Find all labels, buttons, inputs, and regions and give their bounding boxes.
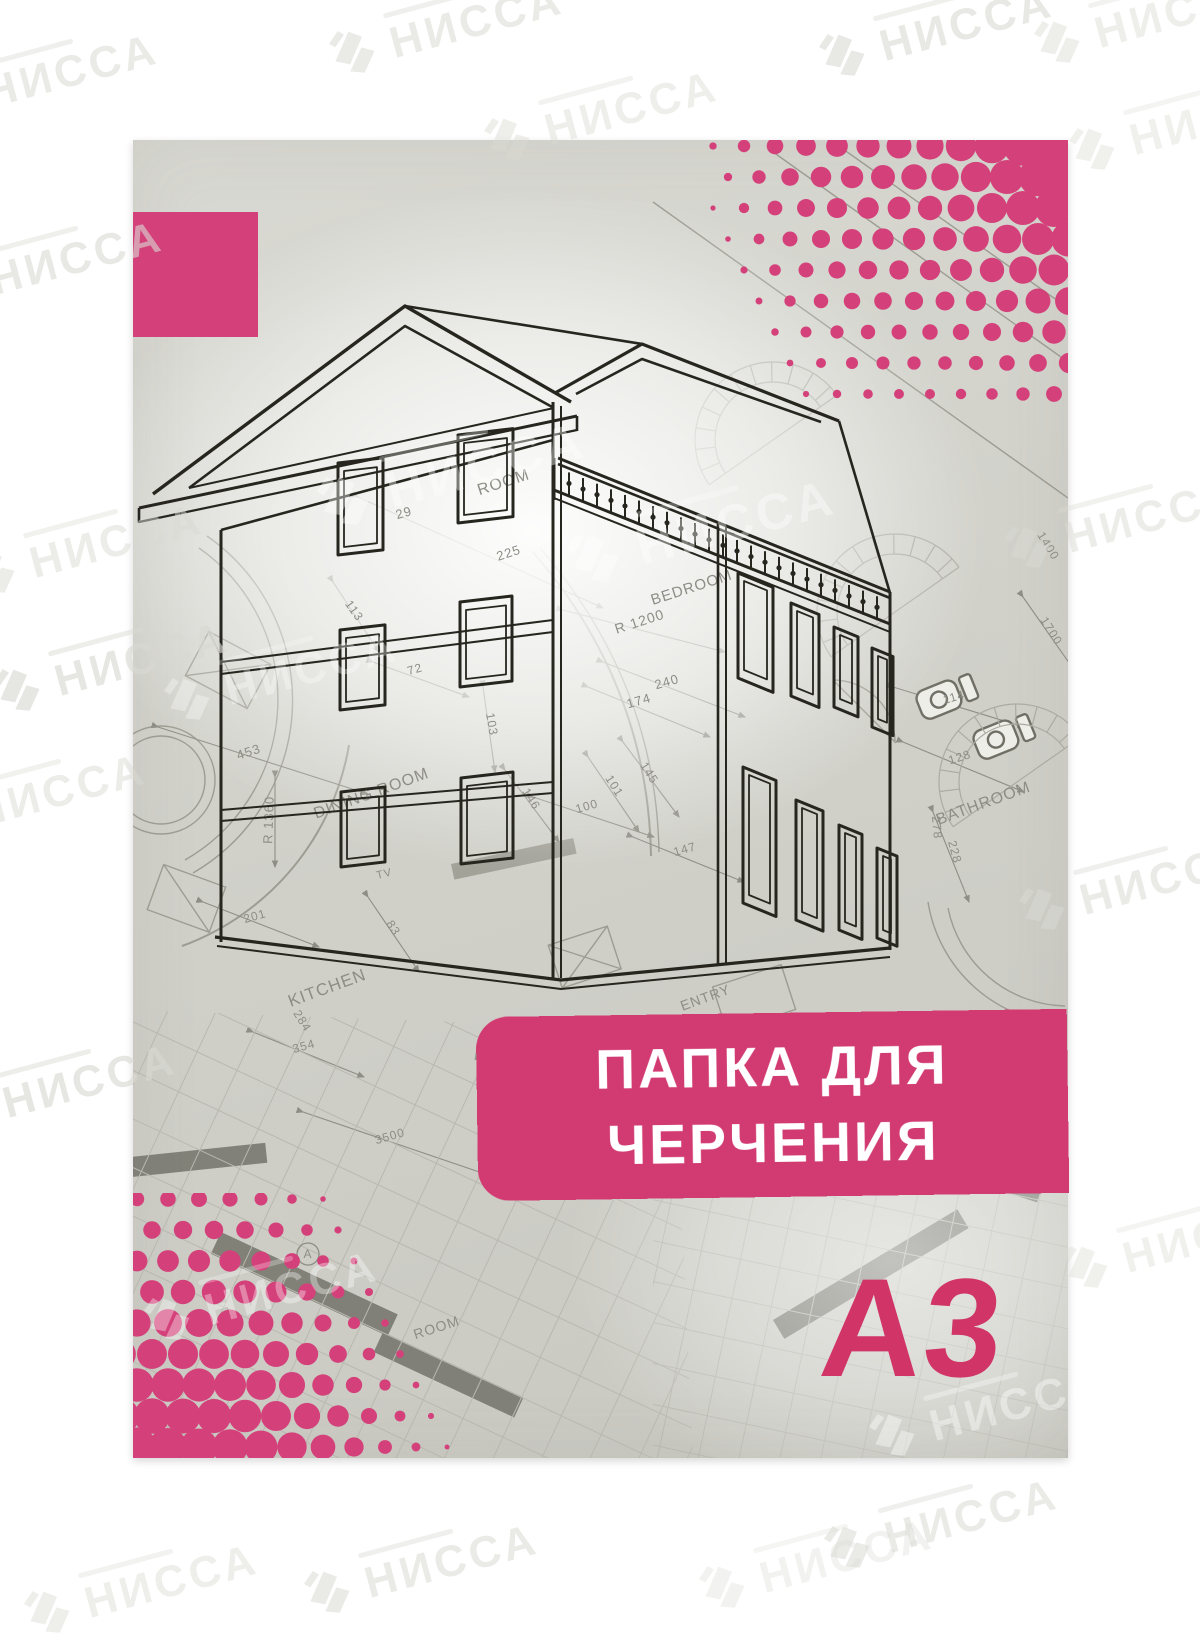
nissa-logo-icon (17, 1576, 83, 1642)
watermark-tagline-bar (0, 1048, 92, 1078)
watermark-tagline-bar (1123, 85, 1200, 115)
watermark-brand-text: НИССА (1090, 0, 1200, 56)
nissa-logo-icon (812, 19, 878, 85)
watermark-tagline-bar (873, 0, 969, 22)
watermark-text-block: НИССА (78, 1528, 264, 1626)
watermark-text-block: НИССА (383, 0, 569, 66)
blueprint-label: 201 (242, 906, 268, 926)
watermark-tagline-bar (1116, 1203, 1200, 1233)
watermark: НИССА (17, 1528, 263, 1642)
blueprint-label: 228 (945, 839, 964, 865)
house-glow (133, 185, 993, 875)
blueprint-label: 128 (947, 747, 973, 767)
watermark-tagline-bar (1058, 483, 1154, 513)
watermark: НИССА (1062, 65, 1200, 179)
watermark: НИССА (812, 0, 1058, 85)
blueprint-label: 83 (383, 918, 403, 938)
blueprint-label: TV (375, 866, 393, 882)
watermark-tagline-bar (78, 1548, 174, 1578)
blueprint-label: BATHROOM (934, 779, 1033, 829)
blueprint-label: 1400 (1034, 529, 1062, 562)
watermark-brand-text: НИССА (875, 0, 1058, 69)
nissa-logo-icon (692, 1551, 758, 1617)
title-badge: ПАПКА ДЛЯ ЧЕРЧЕНИЯ (476, 1009, 1070, 1201)
watermark-tagline-bar (878, 1483, 974, 1513)
nissa-logo-icon (1027, 6, 1093, 72)
watermark-brand-text: НИССА (80, 1537, 263, 1625)
watermark-brand-text: НИССА (1075, 834, 1200, 922)
watermark-tagline-bar (0, 758, 62, 788)
blueprint-label: 1700 (1037, 614, 1065, 647)
pink-accent-square (133, 212, 258, 337)
watermark-text-block: НИССА (0, 18, 163, 116)
watermark: НИССА (297, 1508, 543, 1622)
watermark-tagline-bar (48, 626, 144, 656)
watermark-tagline-bar (358, 1528, 454, 1558)
watermark-tagline-bar (1073, 845, 1169, 875)
watermark-brand-text: НИССА (755, 1512, 938, 1600)
watermark-text-block: НИССА (358, 1508, 544, 1606)
watermark: НИССА (0, 738, 151, 852)
nissa-logo-icon (0, 1076, 1, 1142)
nissa-logo-icon (297, 1556, 363, 1622)
watermark: НИССА (817, 1463, 1063, 1577)
watermark-brand-text: НИССА (1060, 472, 1200, 560)
nissa-logo-icon (322, 16, 388, 82)
watermark-text-block: НИССА (1116, 1183, 1200, 1281)
blueprint-label: ENTRY (678, 981, 733, 1014)
watermark: НИССА (1027, 0, 1200, 72)
title-line-2: ЧЕРЧЕНИЯ (606, 1103, 939, 1184)
watermark: НИССА (692, 1503, 938, 1617)
blueprint-label: A (303, 1247, 312, 1261)
product-photo-page: { "product_cover": { "title_line1": "ПАП… (0, 0, 1200, 1600)
watermark-tagline-bar (383, 0, 479, 19)
blueprint-label: 284 (290, 1007, 314, 1034)
watermark-text-block: НИССА (1123, 65, 1200, 163)
blueprint-label: ROOM (411, 1312, 461, 1342)
blueprint-label: R 1360 (260, 796, 277, 844)
watermark-text-block: НИССА (538, 55, 724, 153)
watermark-tagline-bar (1088, 0, 1184, 9)
watermark-brand-text: НИССА (1118, 1192, 1200, 1280)
nissa-logo-icon (0, 536, 28, 602)
watermark-tagline-bar (0, 38, 74, 68)
watermark-text-block: НИССА (878, 1463, 1064, 1561)
folder-cover: ROOMBEDROOMDINING ROOMKITCHENBATHROOMENT… (133, 140, 1068, 1458)
watermark: НИССА (0, 18, 163, 132)
watermark-brand-text: НИССА (1125, 74, 1200, 162)
watermark-brand-text: НИССА (0, 747, 151, 835)
watermark-brand-text: НИССА (385, 0, 568, 66)
blueprint-label: 3500 (373, 1125, 406, 1147)
watermark-text-block: НИССА (0, 738, 151, 836)
watermark-tagline-bar (0, 225, 79, 255)
blueprint-label: KITCHEN (286, 965, 369, 1011)
nissa-logo-icon (0, 654, 53, 720)
format-label: А3 (816, 1258, 1009, 1398)
nissa-logo-icon (817, 1511, 883, 1577)
blueprint-label: 354 (291, 1036, 317, 1056)
watermark: НИССА (322, 0, 568, 82)
watermark-tagline-bar (538, 75, 634, 105)
watermark-brand-text: НИССА (880, 1472, 1063, 1560)
watermark-tagline-bar (753, 1523, 849, 1553)
watermark: НИССА (1055, 1183, 1200, 1297)
nissa-logo-icon (1062, 113, 1128, 179)
watermark-text-block: НИССА (1058, 463, 1200, 561)
watermark-text-block: НИССА (753, 1503, 939, 1601)
watermark-text-block: НИССА (873, 0, 1059, 69)
watermark-brand-text: НИССА (360, 1517, 543, 1605)
watermark-brand-text: НИССА (0, 27, 163, 115)
blueprint-label: 278 (929, 816, 945, 840)
watermark-text-block: НИССА (1073, 825, 1200, 923)
watermark-tagline-bar (23, 508, 119, 538)
watermark-text-block: НИССА (1088, 0, 1200, 56)
title-line-1: ПАПКА ДЛЯ (595, 1027, 949, 1108)
